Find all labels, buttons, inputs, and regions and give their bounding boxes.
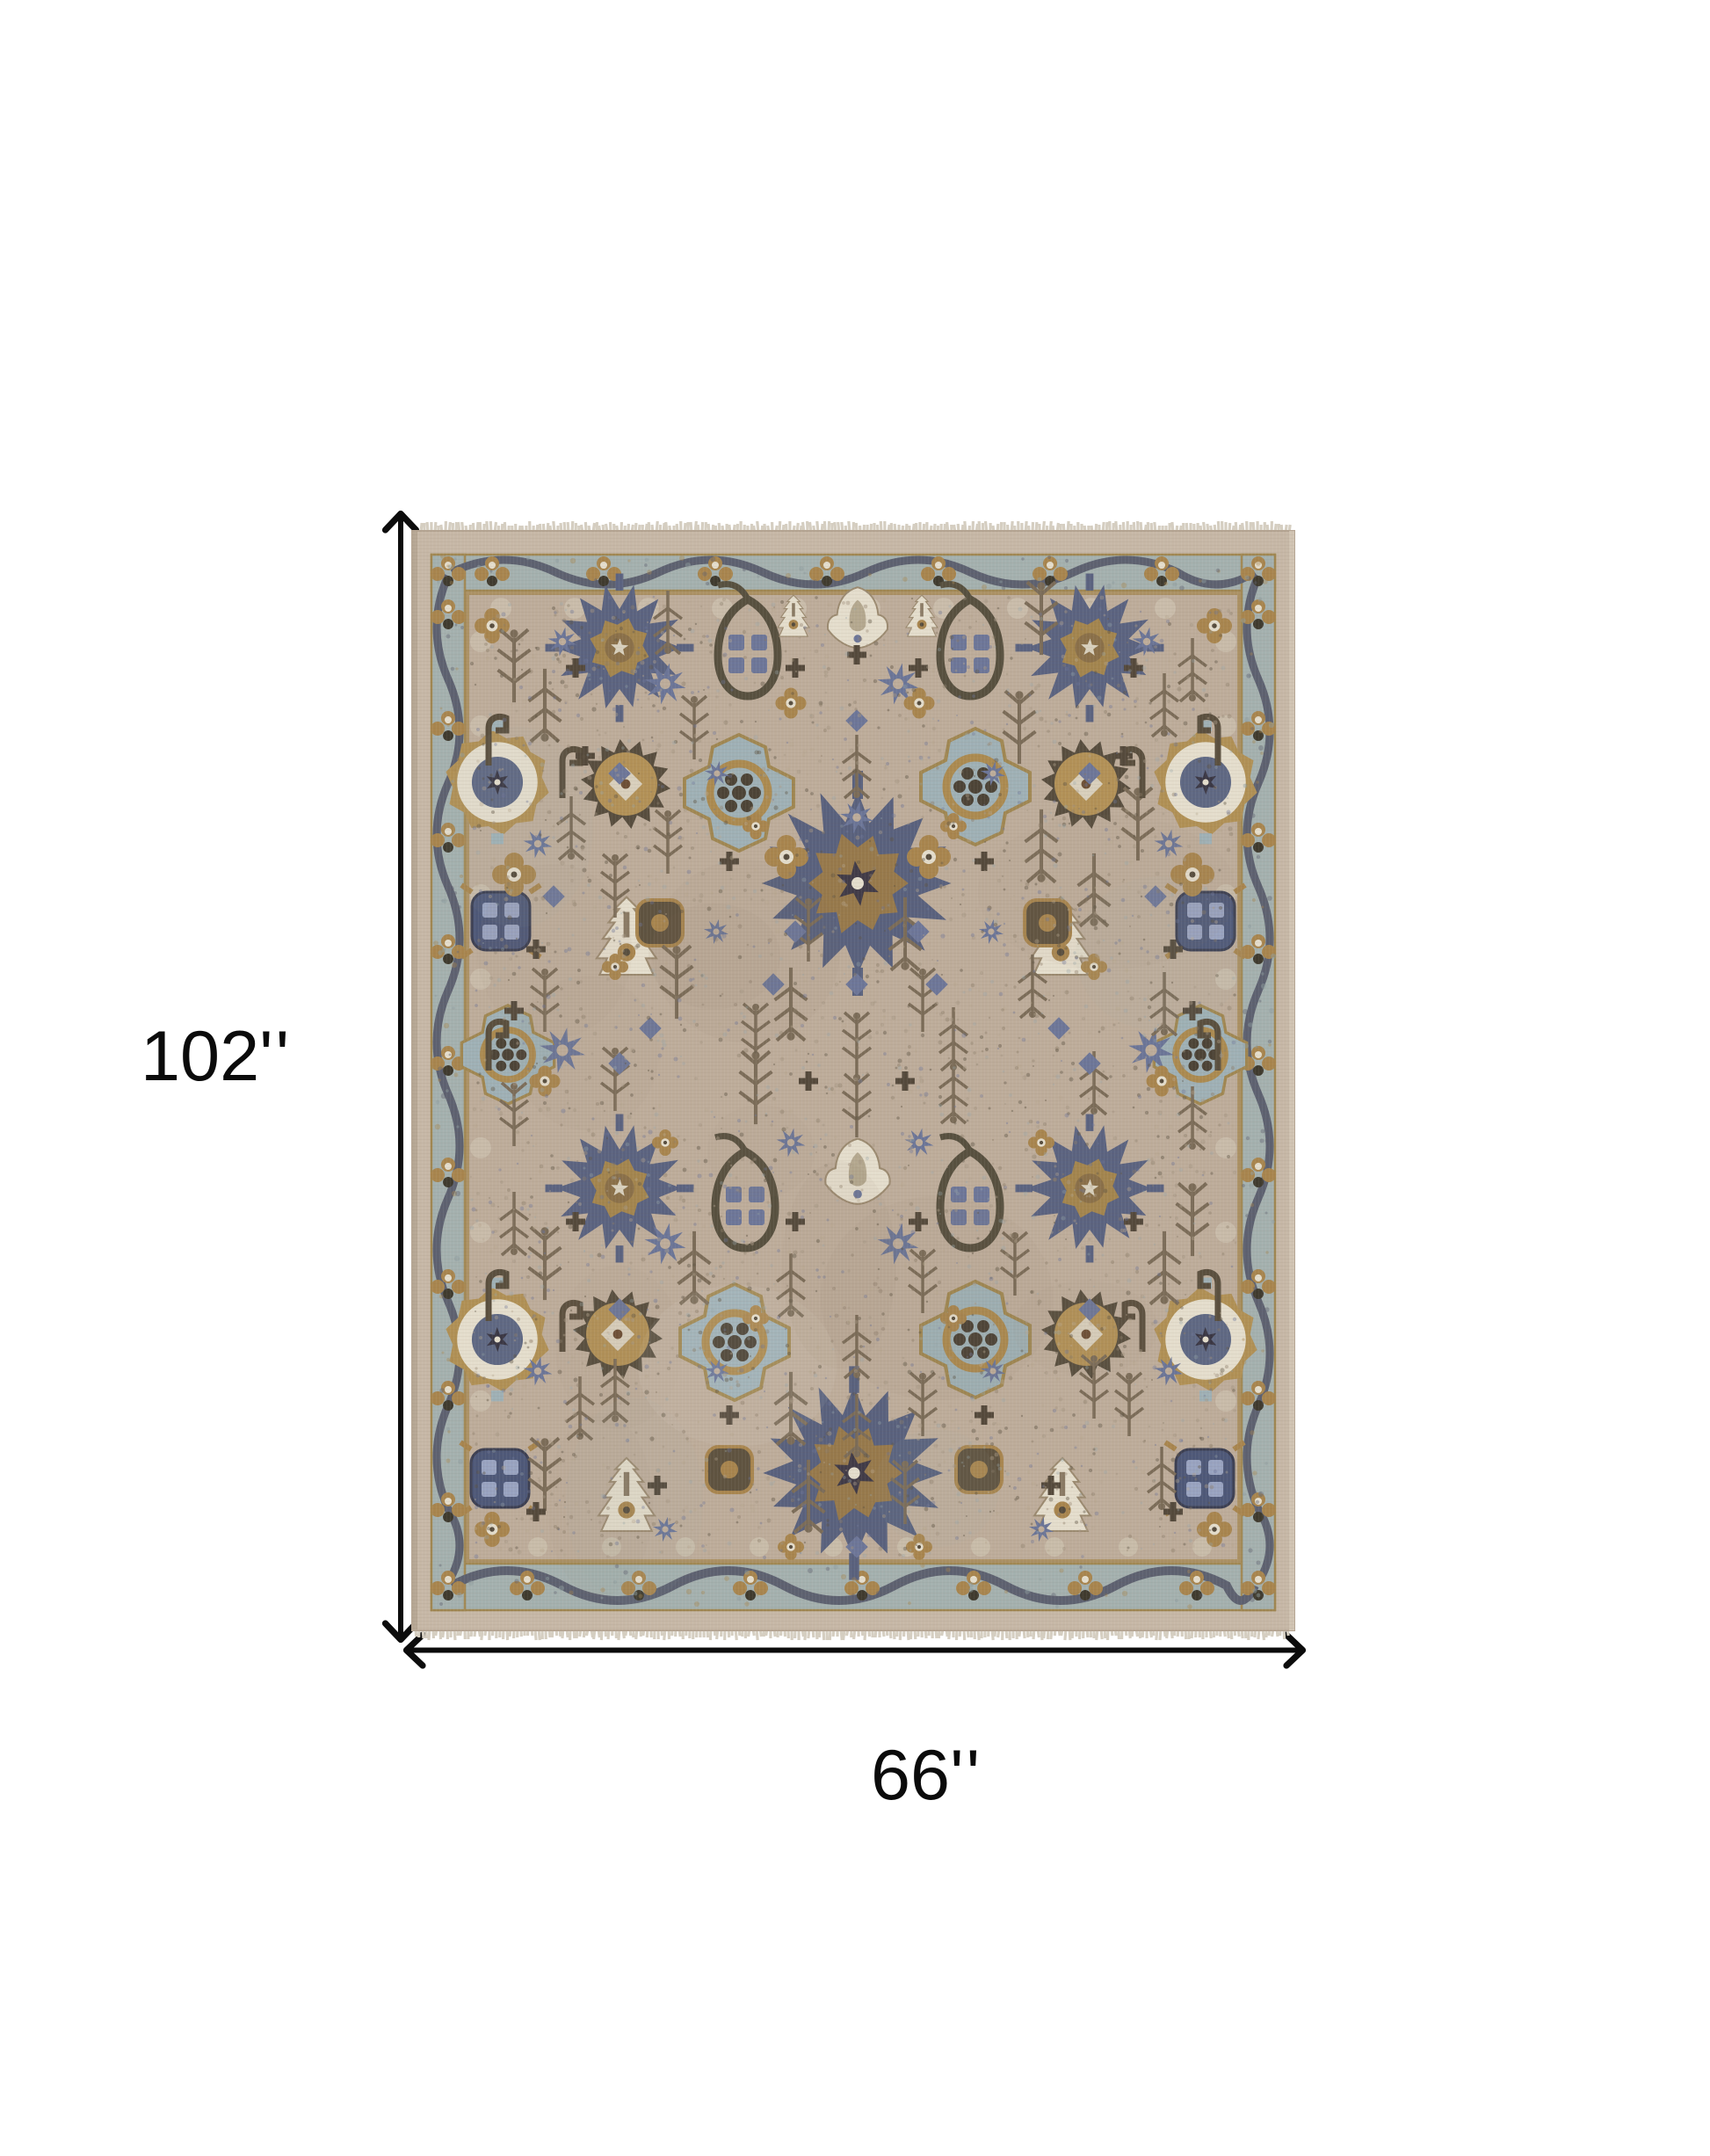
svg-text:66'': 66''	[871, 1736, 980, 1815]
svg-text:102'': 102''	[141, 1017, 289, 1096]
